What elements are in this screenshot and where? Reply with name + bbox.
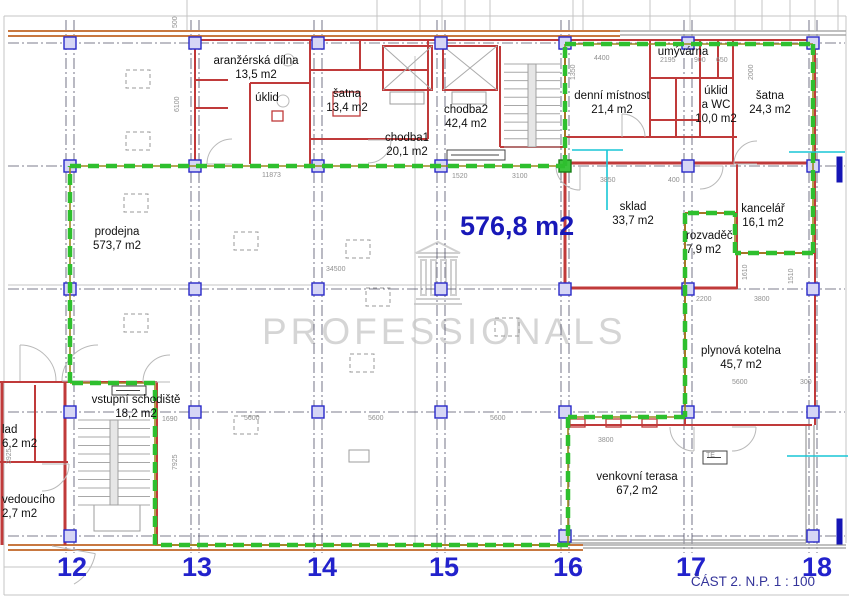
dimension-text: 900 [694,57,706,64]
dimension-text: 34500 [326,266,345,273]
room-label-chodba-1: chodba120,1 m2 [332,131,482,159]
total-area-label: 576,8 m2 [460,211,574,242]
room-label-sklad: sklad33,7 m2 [558,200,708,228]
dimension-text: 1520 [452,173,468,180]
dimension-text: 400 [668,177,680,184]
room-label-prodejna: prodejna573,7 m2 [42,225,192,253]
dimension-text: 2200 [696,296,712,303]
dimension-text: 3800 [598,437,614,444]
dimension-text: 3925 [6,448,13,464]
grid-axis-number-12: 12 [37,552,107,583]
dimension-text: 1610 [742,264,749,280]
grid-axis-number-13: 13 [162,552,232,583]
dimension-text: 2000 [748,64,755,80]
dimension-text: 7925 [172,454,179,470]
grid-axis-number-14: 14 [287,552,357,583]
dimension-text: 5600 [490,415,506,422]
room-label-plynova-kotelna: plynová kotelna45,7 m2 [666,344,816,372]
dimension-text: 300 [800,379,812,386]
dimension-text: 1690 [162,416,178,423]
room-label-vedouciho-partial: vedoucího2,7 m2 [2,493,55,521]
dimension-text: 5600 [732,379,748,386]
room-label-kancelar: kancelář16,1 m2 [688,202,838,230]
dimension-text: 3850 [600,177,616,184]
dimension-text: TE [706,452,715,459]
dimension-text: 1350 [570,64,577,80]
dimension-text: 4400 [594,55,610,62]
room-label-umyvarna: umývárna [608,45,758,59]
floor-plan-sheet: PROFESSIONALS 576,8 m2 aranžérská dílna1… [0,0,851,606]
dimension-text: 5600 [244,415,260,422]
dimension-text: 3800 [754,296,770,303]
drawing-caption: ČÁST 2. N.P. 1 : 100 [640,574,815,589]
dimension-text: 5600 [368,415,384,422]
dimension-text: 650 [716,57,728,64]
dimension-text: 11873 [262,172,281,179]
room-label-aranzerska-dilna: aranžérská dílna13,5 m2 [181,54,331,82]
room-label-vstupni-schodiste: vstupní schodiště18,2 m2 [61,393,211,421]
room-label-chodba-2: chodba242,4 m2 [391,103,541,131]
room-label-satna-2: šatna24,3 m2 [695,89,845,117]
grid-axis-number-15: 15 [409,552,479,583]
room-label-venkovni-terasa: venkovní terasa67,2 m2 [562,470,712,498]
dimension-text: 6100 [174,96,181,112]
room-label-rozvadec: rozvaděč7,9 m2 [686,229,733,257]
room-label-sklad-partial: lad6,2 m2 [2,423,37,451]
dimension-text: 3100 [512,173,528,180]
dimension-text: 2195 [660,57,676,64]
grid-axis-number-16: 16 [533,552,603,583]
dimension-text: 1510 [788,268,795,284]
dimension-text: 500 [172,16,179,28]
